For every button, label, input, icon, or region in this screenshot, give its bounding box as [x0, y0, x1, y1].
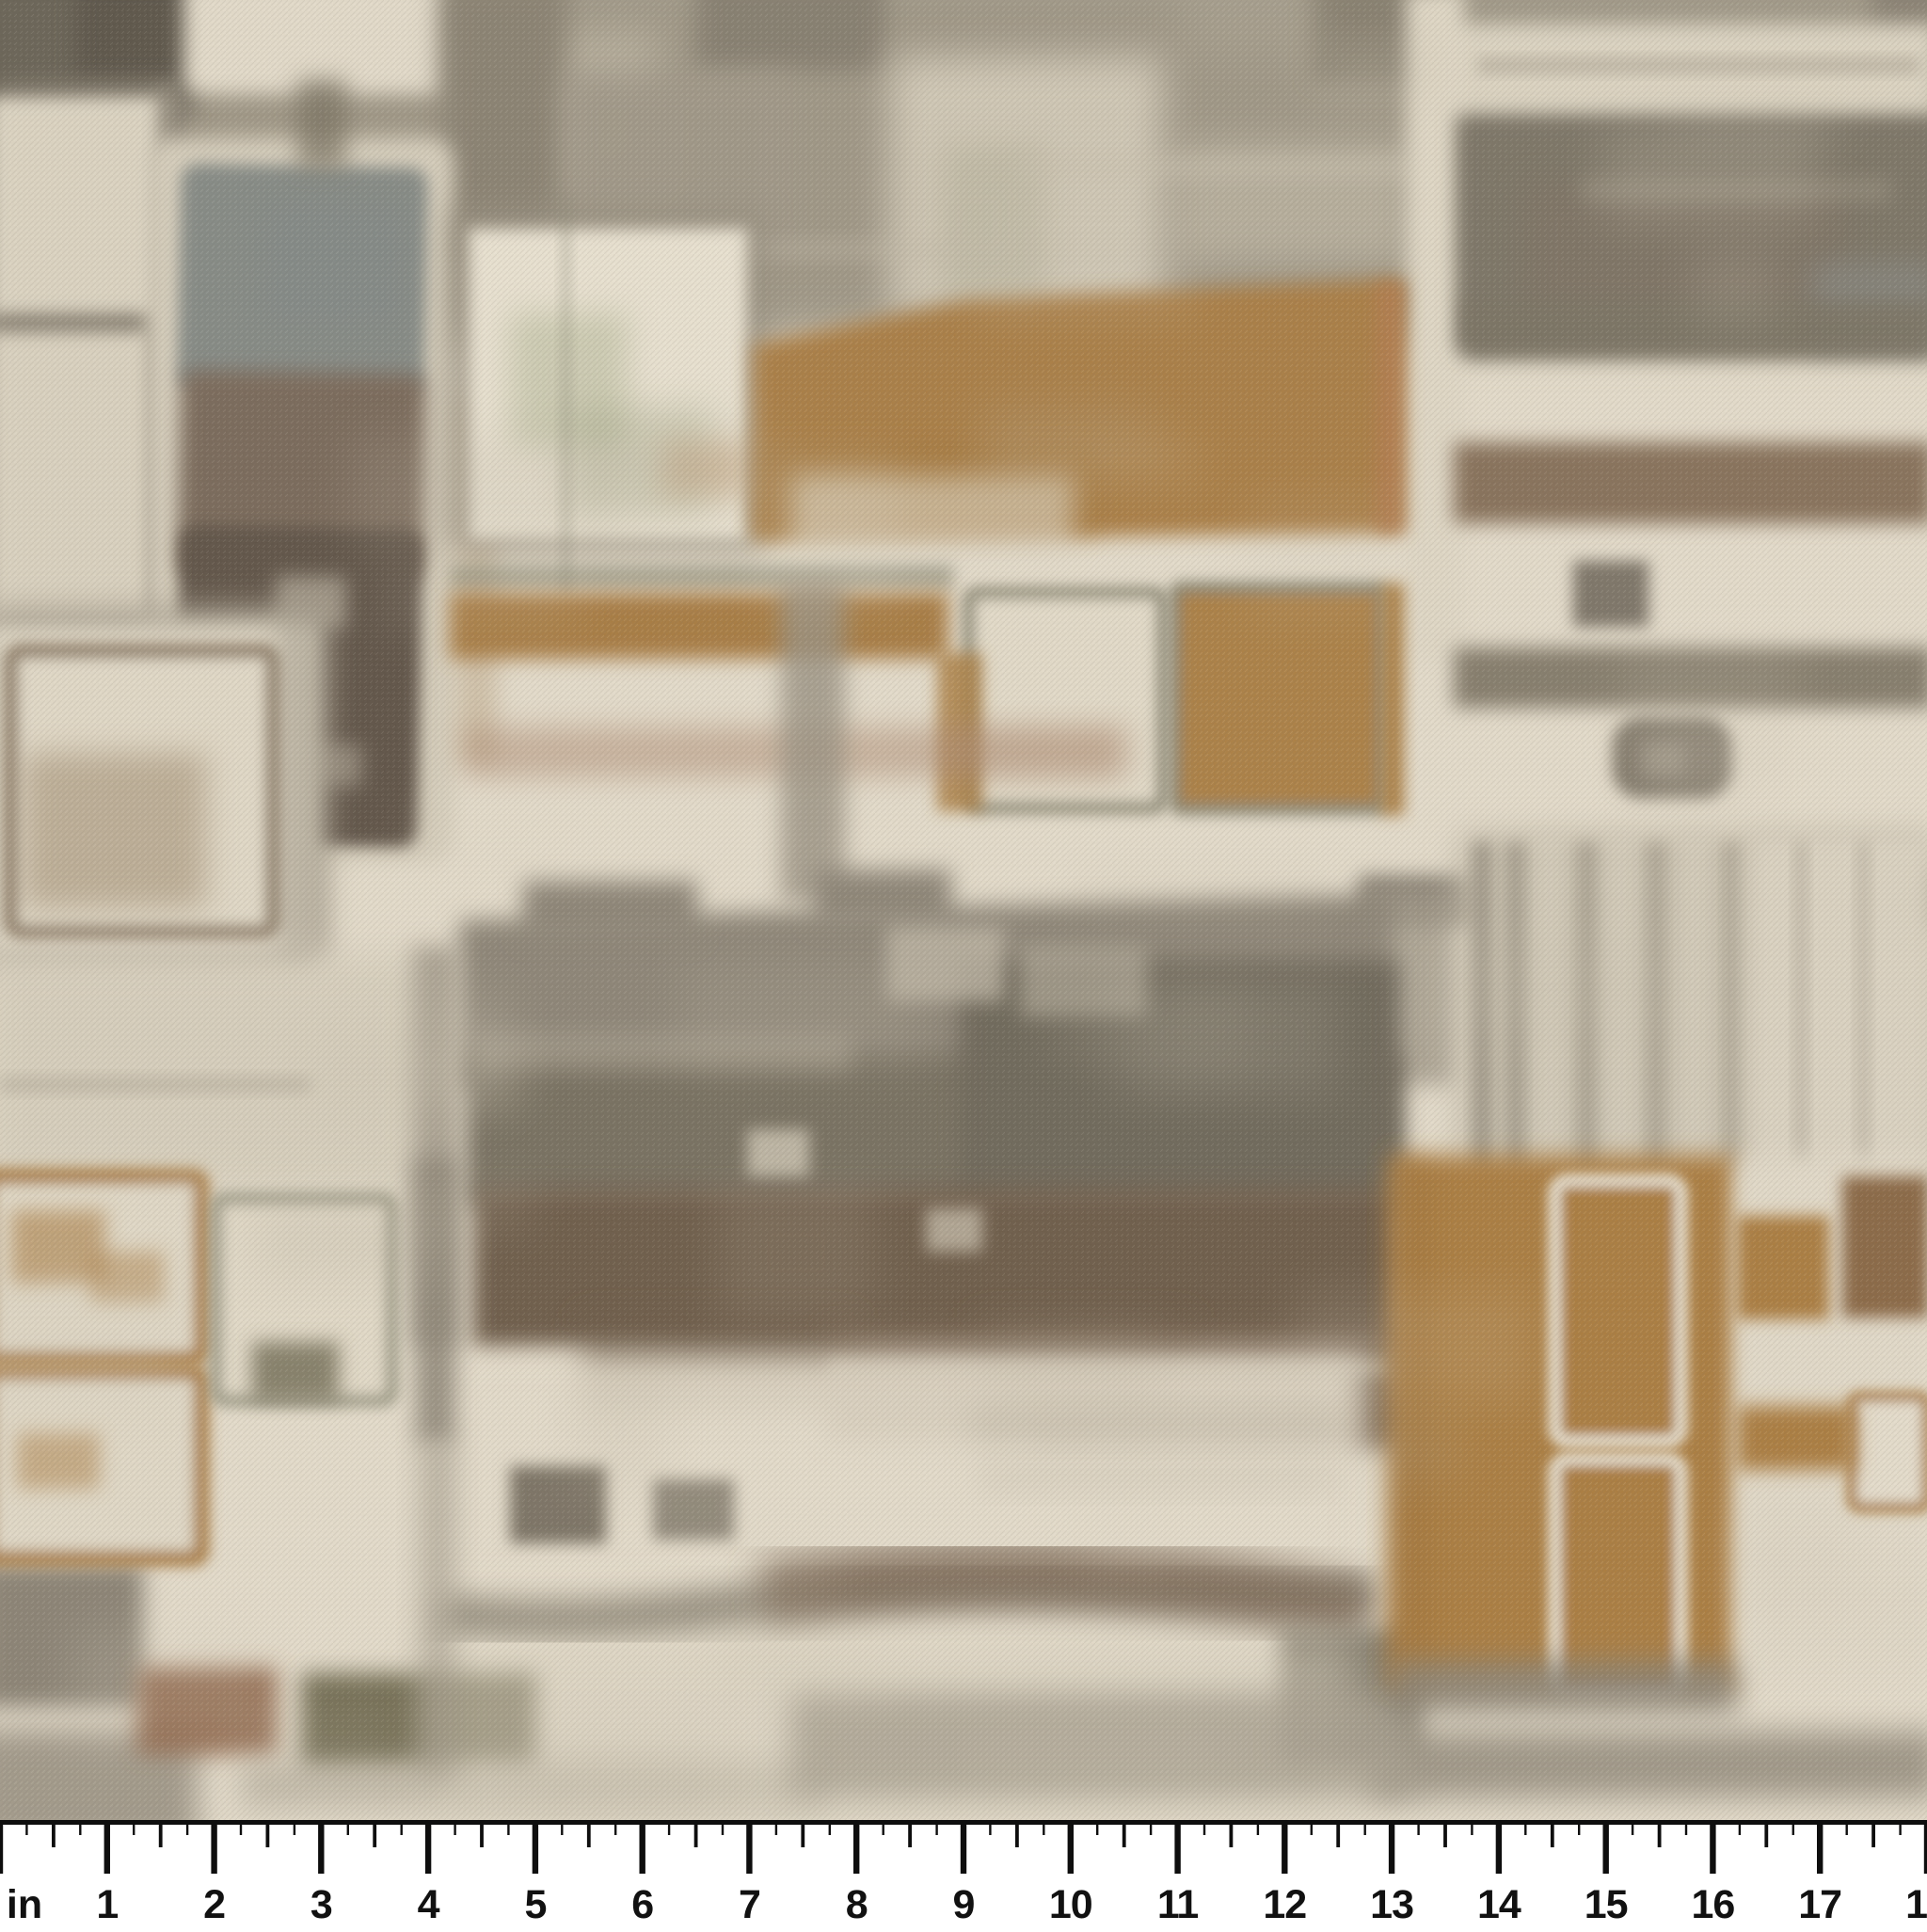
svg-text:5: 5 [524, 1882, 546, 1927]
svg-text:10: 10 [1049, 1882, 1092, 1927]
svg-text:11: 11 [1157, 1882, 1199, 1927]
svg-text:6: 6 [631, 1882, 653, 1927]
svg-text:12: 12 [1263, 1882, 1306, 1927]
svg-text:7: 7 [739, 1882, 760, 1927]
svg-text:17: 17 [1798, 1882, 1841, 1927]
svg-text:16: 16 [1691, 1882, 1734, 1927]
svg-text:18: 18 [1905, 1882, 1927, 1927]
svg-text:2: 2 [203, 1882, 225, 1927]
svg-text:1: 1 [96, 1882, 118, 1927]
svg-text:15: 15 [1585, 1882, 1628, 1927]
svg-text:14: 14 [1477, 1882, 1521, 1927]
svg-text:4: 4 [418, 1882, 440, 1927]
svg-text:in: in [7, 1882, 42, 1927]
svg-text:9: 9 [953, 1882, 975, 1927]
svg-text:13: 13 [1370, 1882, 1413, 1927]
svg-text:8: 8 [846, 1882, 868, 1927]
svg-text:3: 3 [311, 1882, 332, 1927]
